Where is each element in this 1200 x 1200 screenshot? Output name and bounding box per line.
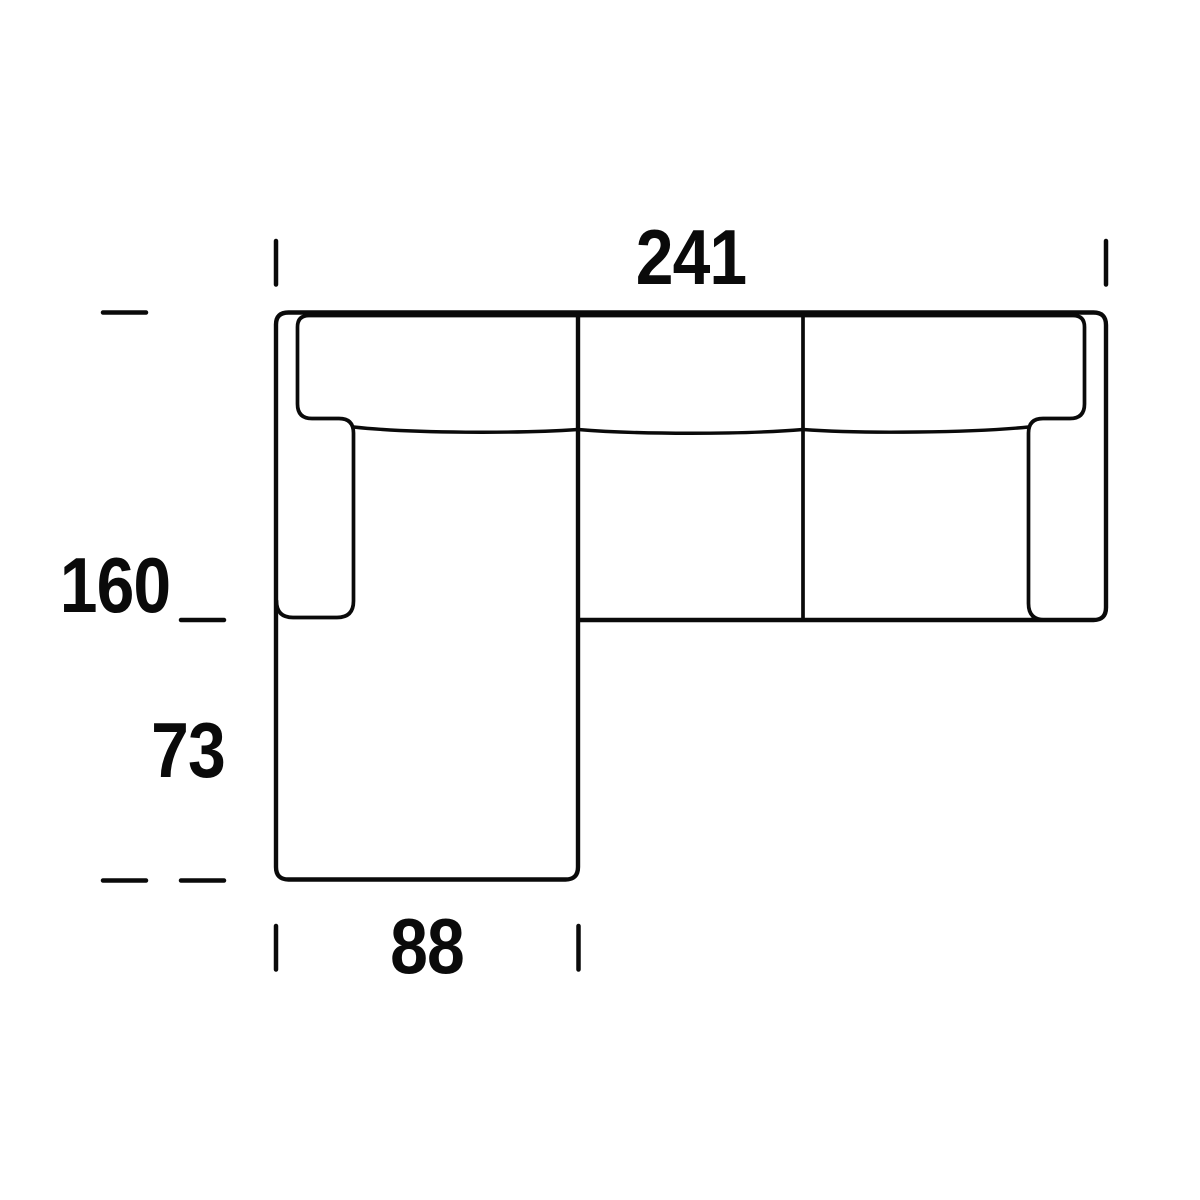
backrest-and-armrest-inner-line: [277, 316, 1085, 621]
dimension-label-top-width: 241: [636, 218, 747, 296]
sofa-dimension-diagram: 241 160 73 88: [0, 0, 1200, 1200]
sofa-drawing-group: [103, 241, 1106, 970]
dimension-label-bottom-chaise-width: 88: [390, 907, 464, 985]
dimension-label-left-open-section: 73: [151, 711, 225, 789]
dimension-label-left-total-depth: 160: [60, 546, 171, 624]
sofa-outer-outline: [276, 313, 1106, 880]
cushion-front-curves: [354, 427, 1029, 433]
dimension-tick-marks: [103, 241, 1106, 970]
sofa-line-drawing: [0, 0, 1200, 1200]
